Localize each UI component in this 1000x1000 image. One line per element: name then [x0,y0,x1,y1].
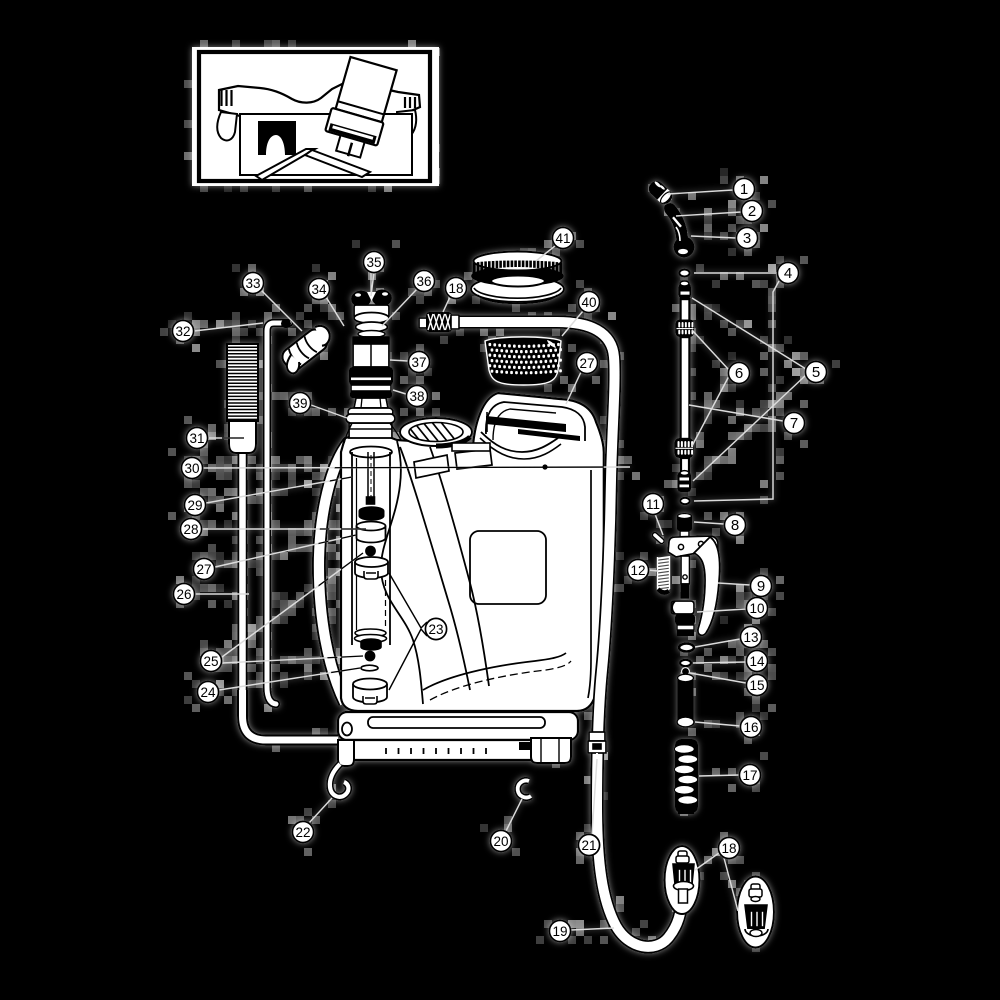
svg-text:27: 27 [196,562,211,577]
svg-text:2: 2 [748,203,756,220]
svg-text:15: 15 [749,678,764,693]
svg-text:22: 22 [295,825,310,840]
svg-text:24: 24 [200,685,216,700]
svg-text:19: 19 [552,924,567,939]
svg-text:41: 41 [555,231,570,246]
svg-text:38: 38 [409,389,424,404]
svg-text:20: 20 [493,834,508,849]
svg-text:3: 3 [743,230,751,247]
svg-text:14: 14 [749,654,765,669]
svg-text:7: 7 [790,415,798,432]
svg-text:21: 21 [581,838,596,853]
svg-text:11: 11 [646,497,660,512]
svg-text:12: 12 [630,563,645,578]
svg-text:32: 32 [175,324,190,339]
svg-text:5: 5 [812,364,820,381]
svg-text:25: 25 [203,654,218,669]
svg-text:28: 28 [183,522,198,537]
svg-text:1: 1 [740,181,748,198]
svg-text:31: 31 [189,431,204,446]
svg-text:33: 33 [245,276,260,291]
svg-text:18: 18 [448,281,463,296]
svg-text:30: 30 [184,461,199,476]
svg-text:18: 18 [721,841,736,856]
svg-text:8: 8 [731,517,739,534]
svg-text:13: 13 [743,630,758,645]
svg-text:27: 27 [579,356,594,371]
svg-text:35: 35 [366,255,381,270]
svg-text:36: 36 [416,274,431,289]
svg-text:4: 4 [784,265,792,282]
svg-text:17: 17 [742,768,757,783]
svg-text:37: 37 [411,355,426,370]
svg-text:39: 39 [292,396,307,411]
svg-text:16: 16 [743,720,758,735]
svg-text:29: 29 [187,498,202,513]
svg-text:6: 6 [735,365,743,382]
svg-text:26: 26 [176,587,191,602]
svg-text:10: 10 [749,601,764,616]
svg-text:9: 9 [757,578,765,595]
svg-text:40: 40 [581,295,596,310]
svg-text:23: 23 [428,622,443,637]
svg-text:34: 34 [311,282,327,297]
